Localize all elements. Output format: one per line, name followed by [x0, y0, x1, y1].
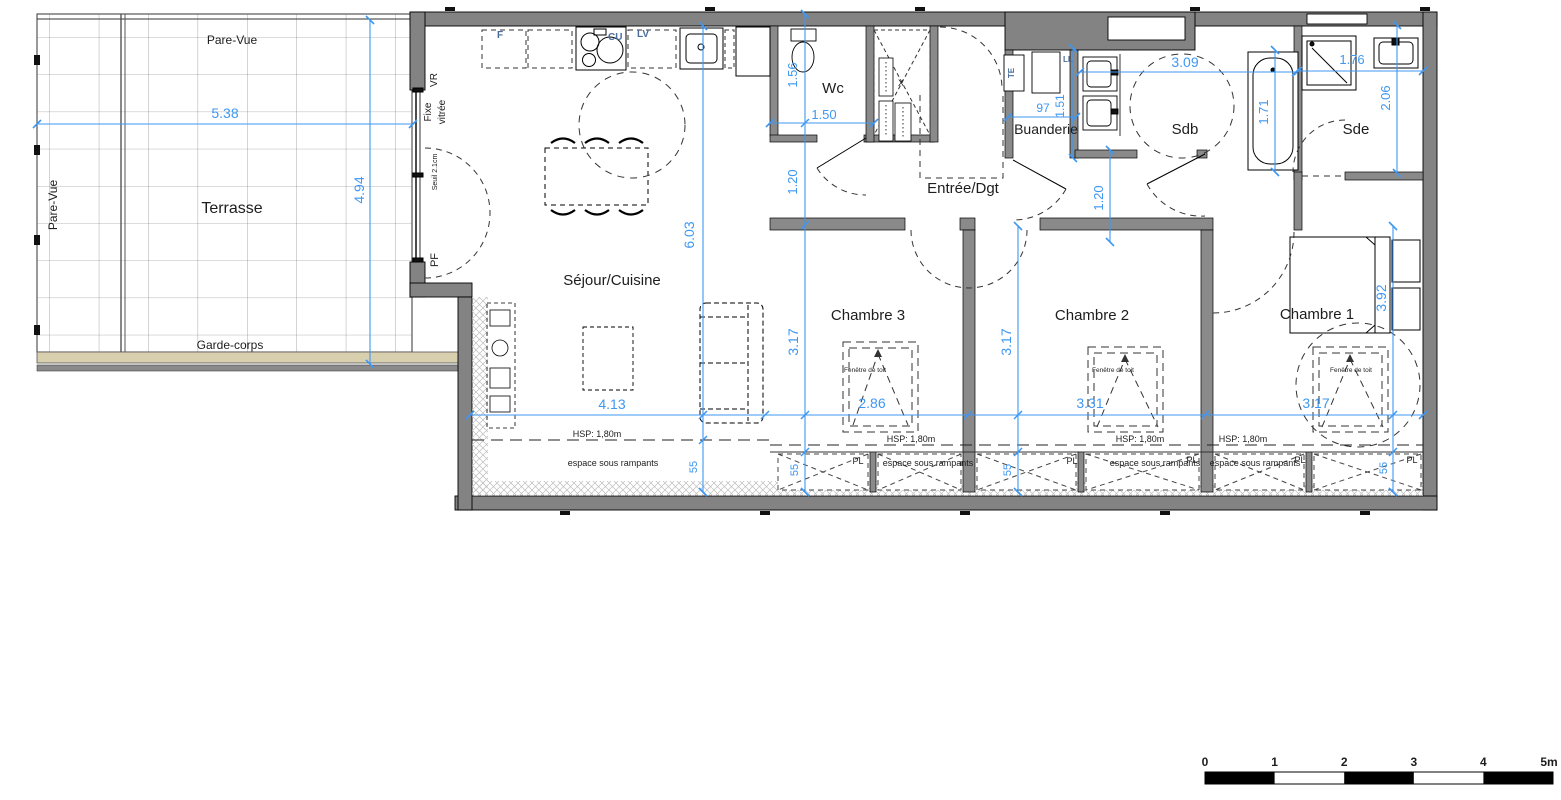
dim-buanderie-largeur: 97 [1036, 101, 1050, 115]
dim-chambre3-largeur: 2.86 [858, 395, 885, 411]
dim-sdb-profondeur: 1.71 [1256, 99, 1271, 124]
fenetre-toit-label: Fenêtre de toit [1092, 367, 1134, 374]
dim-chambre1-largeur: 3.17 [1302, 395, 1329, 411]
fridge-label: F [497, 30, 503, 41]
dim-terrasse-largeur: 5.38 [211, 105, 238, 121]
entree-label: Entrée/Dgt [927, 180, 1000, 197]
cooktop-label: CU [608, 32, 622, 43]
sofa [700, 303, 763, 423]
wc-room [791, 29, 930, 141]
buanderie-label: Buanderie [1014, 121, 1078, 137]
pare-vue-left-label: Pare-Vue [46, 180, 60, 231]
dim-degagement-wc: 1.20 [785, 169, 800, 194]
sde-label: Sde [1343, 121, 1370, 138]
dim-degagement-sdb: 1.20 [1091, 185, 1106, 210]
dim-sejour-largeur: 4.13 [598, 396, 625, 412]
dim-allege: 55 [1002, 464, 1014, 476]
hsp-label: HSP: 1,80m [1116, 434, 1165, 444]
toilet-tank [791, 29, 816, 41]
dim-allege: 55 [789, 464, 801, 476]
entry-door-swing [940, 27, 1002, 89]
fenetre-toit-label: Fenêtre de toit [844, 367, 886, 374]
kitchen-counter [482, 27, 770, 76]
fixe-label: Fixe [423, 102, 434, 121]
seuil-label: Seuil 2.1cm [432, 154, 439, 191]
scale-tick-5: 5m [1540, 755, 1557, 769]
hsp-label: HSP: 1,80m [1219, 434, 1268, 444]
dining-table [545, 139, 648, 215]
floor-plan-page: Pare-Vue Pare-Vue Terrasse Garde-corps V… [0, 0, 1561, 800]
dishwasher-label: LV [637, 29, 649, 40]
sejour-label: Séjour/Cuisine [563, 272, 661, 289]
tv-cabinet [487, 303, 515, 428]
skylight-chambre2 [1088, 347, 1163, 432]
scale-tick-2: 2 [1341, 755, 1348, 769]
electrical-panels [879, 58, 911, 141]
sde-washbasin [1374, 38, 1418, 68]
dim-chambre2-profondeur: 3.17 [998, 328, 1014, 355]
dim-sde-largeur: 1.76 [1339, 52, 1364, 67]
terrace-post [34, 55, 40, 65]
glazed-window-fixe-vitree [413, 88, 423, 262]
dim-chambre3-profondeur: 3.17 [785, 328, 801, 355]
skylight-niche [1108, 17, 1185, 40]
chambre1-door-swing [1213, 232, 1294, 313]
espace-rampants-label: espace sous rampants [1210, 458, 1301, 468]
skylight-chambre1 [1313, 347, 1388, 432]
pf-label: PF [429, 253, 441, 267]
vr-label: VR [429, 73, 440, 87]
nightstand [1392, 288, 1420, 330]
dim-sejour-longueur: 6.03 [681, 221, 697, 248]
skylight-chambre3 [843, 342, 918, 432]
dim-terrasse-profondeur: 4.94 [351, 176, 367, 203]
scale-tick-1: 1 [1271, 755, 1278, 769]
chambre1-label: Chambre 1 [1280, 306, 1354, 323]
placard-label: PL [1066, 456, 1077, 466]
scale-bar: 0 1 2 3 4 5m [1202, 755, 1558, 784]
electrical-board-label: TE [1007, 67, 1016, 78]
terrace [34, 14, 470, 371]
garde-corps-band [37, 352, 470, 363]
tall-cabinet [736, 27, 770, 76]
terrace-post [34, 235, 40, 245]
dim-sdb-largeur: 3.09 [1171, 54, 1198, 70]
dim-allege: 55 [1378, 462, 1390, 474]
placard-label: PL [1406, 455, 1417, 465]
terrasse-label: Terrasse [201, 200, 262, 217]
chairs [551, 139, 643, 215]
terrace-post [34, 145, 40, 155]
dim-chambre2-largeur: 3.31 [1076, 395, 1103, 411]
shaft-label: X [898, 78, 904, 88]
washer-box [1032, 52, 1060, 93]
scale-tick-3: 3 [1410, 755, 1417, 769]
dishwasher [628, 30, 676, 68]
dim-chambre1-profondeur: 3.92 [1373, 284, 1389, 311]
sdb-label: Sdb [1172, 121, 1199, 138]
terrace-post [34, 325, 40, 335]
espace-rampants-label: espace sous rampants [883, 458, 974, 468]
dim-allege: 55 [688, 461, 700, 473]
scale-tick-4: 4 [1480, 755, 1487, 769]
placard-label: PL [1186, 455, 1197, 465]
garde-corps-label: Garde-corps [197, 338, 264, 352]
nightstand [1392, 240, 1420, 282]
side-table [583, 327, 633, 390]
dim-sde-profondeur: 2.06 [1378, 85, 1393, 110]
chambre3-label: Chambre 3 [831, 307, 905, 324]
washer-label: LL [1063, 55, 1073, 64]
floor-plan-drawing: Pare-Vue Pare-Vue Terrasse Garde-corps V… [0, 0, 1561, 800]
pare-vue-top-label: Pare-Vue [207, 33, 258, 47]
chambre2-label: Chambre 2 [1055, 307, 1129, 324]
placard-label: PL [852, 456, 863, 466]
placard-label: PL [1294, 455, 1305, 465]
hsp-label: HSP: 1,80m [573, 429, 622, 439]
dim-wc-largeur: 1.50 [811, 107, 836, 122]
scale-tick-0: 0 [1202, 755, 1209, 769]
roof-window-top [1307, 14, 1367, 24]
wc-label: Wc [822, 80, 844, 97]
dim-wc-profondeur: 1.56 [785, 62, 800, 87]
dim-buanderie-profondeur: 1.51 [1053, 94, 1067, 118]
vitree-label: vitrée [437, 99, 448, 124]
fenetre-toit-label: Fenêtre de toit [1330, 367, 1372, 374]
espace-rampants-label: espace sous rampants [568, 458, 659, 468]
terrace-door-swing [425, 213, 490, 278]
hsp-label: HSP: 1,80m [887, 434, 936, 444]
